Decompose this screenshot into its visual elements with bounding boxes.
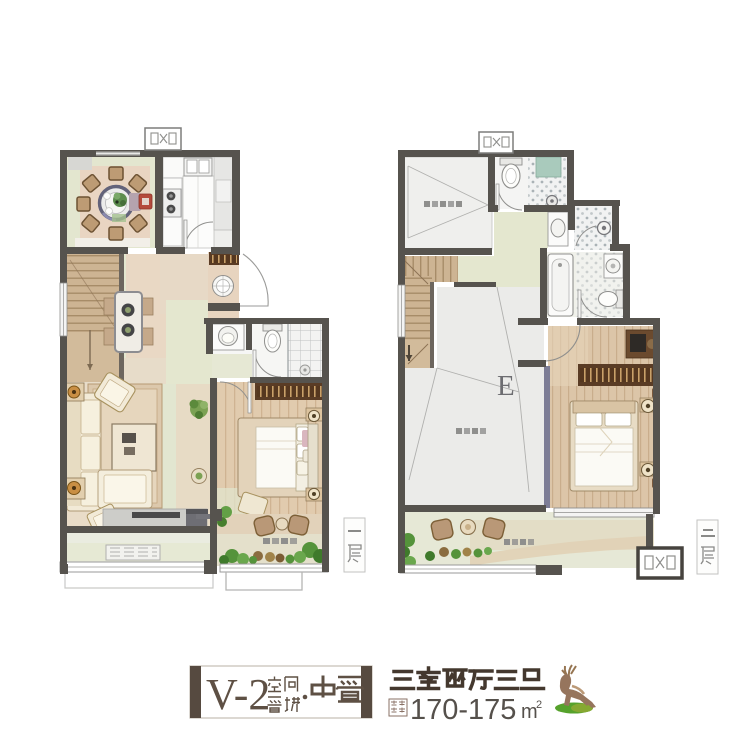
svg-text:2: 2: [536, 699, 542, 711]
svg-text:E: E: [497, 370, 515, 402]
svg-text:170-175: 170-175: [410, 694, 516, 726]
svg-text:V-2: V-2: [206, 670, 270, 719]
